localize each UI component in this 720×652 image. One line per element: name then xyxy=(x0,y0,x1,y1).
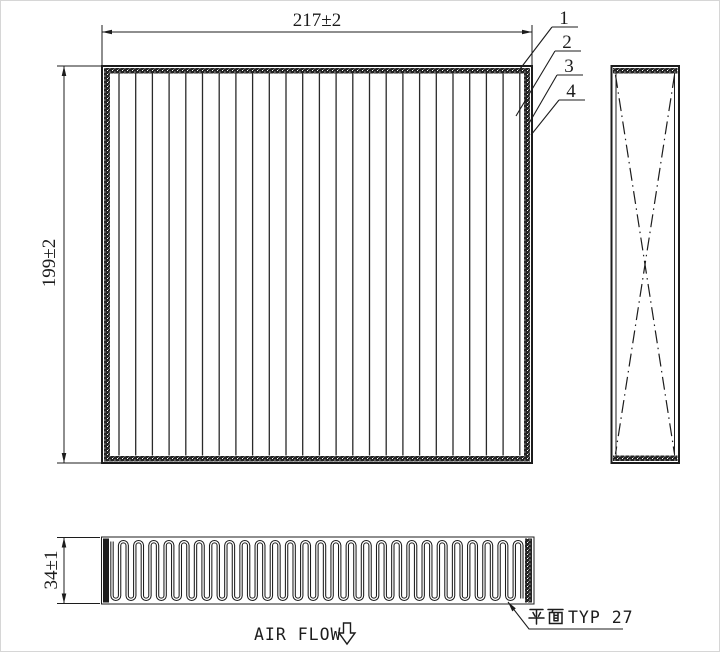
depth-dimension-label: 34±1 xyxy=(41,551,62,590)
side-seal-band-bottom xyxy=(613,456,678,462)
depth-arrow-bottom xyxy=(62,594,67,604)
front-pleat-lines xyxy=(119,74,520,456)
callout-2-label: 2 xyxy=(562,32,572,53)
cjk-mian-glyph xyxy=(548,610,563,624)
dimension-height: 199±2 xyxy=(39,66,101,463)
callout-4-leader xyxy=(531,100,559,135)
filter-engineering-drawing: 217±2 199±2 1 2 3 4 xyxy=(1,1,719,651)
width-dimension-label: 217±2 xyxy=(293,10,341,31)
front-seal-band-right xyxy=(524,68,530,461)
cjk-ping-glyph xyxy=(529,610,544,625)
air-flow-label: AIR FLOW xyxy=(254,625,341,644)
depth-arrow-top xyxy=(62,538,67,548)
front-seal-band-top xyxy=(104,68,530,74)
height-arrow-top xyxy=(62,66,67,76)
air-flow-annotation: AIR FLOW xyxy=(254,623,355,644)
front-seal-band-left xyxy=(104,68,110,461)
callout-4-label: 4 xyxy=(566,81,576,102)
drawing-canvas: 217±2 199±2 1 2 3 4 xyxy=(0,0,720,652)
front-seal-band-bottom xyxy=(104,456,530,462)
dimension-width: 217±2 xyxy=(102,10,532,65)
callout-2-leader xyxy=(516,51,555,116)
callout-3-label: 3 xyxy=(564,56,574,77)
bottom-end-cap-right xyxy=(525,539,532,603)
cjk-pingmian-glyphs xyxy=(529,610,563,625)
bottom-view xyxy=(102,537,535,604)
height-dimension-label: 199±2 xyxy=(39,239,60,287)
pleat-note: TYP 27 xyxy=(508,602,634,629)
dimension-depth: 34±1 xyxy=(41,538,100,604)
width-arrow-left xyxy=(102,30,112,35)
side-view xyxy=(612,66,680,463)
side-seal-band-top xyxy=(613,68,678,74)
pleat-note-latin-label: TYP 27 xyxy=(568,608,634,627)
front-view-frame xyxy=(102,66,532,463)
front-view xyxy=(102,66,532,463)
height-arrow-bottom xyxy=(62,453,67,463)
width-arrow-right xyxy=(522,30,532,35)
callout-1-label: 1 xyxy=(559,8,569,29)
bottom-end-cap-left xyxy=(103,539,109,603)
